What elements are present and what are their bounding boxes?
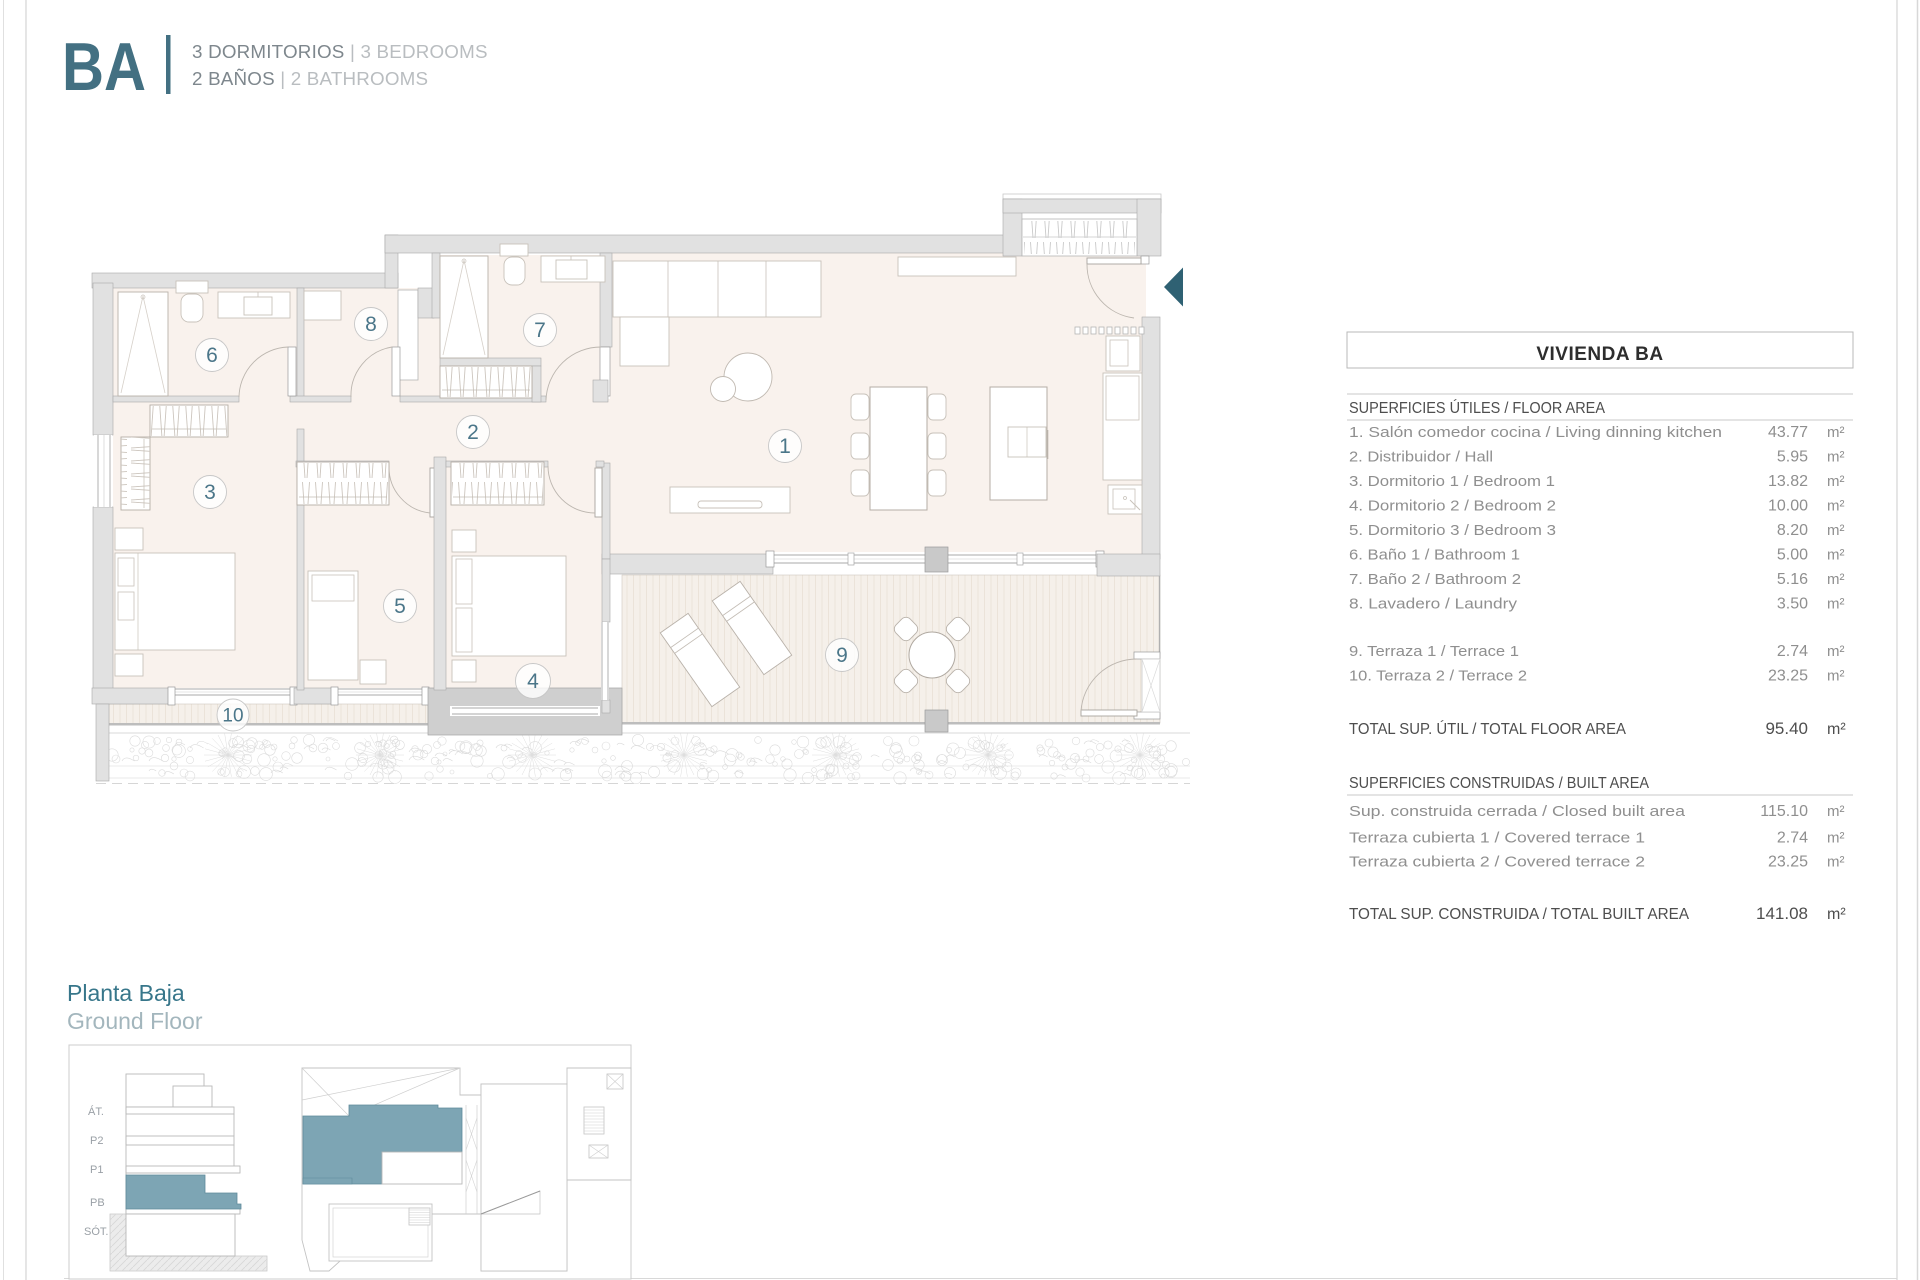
svg-text:13.82: 13.82	[1768, 473, 1808, 490]
svg-text:5.16: 5.16	[1777, 571, 1808, 588]
svg-text:m²: m²	[1827, 473, 1845, 490]
svg-text:Terraza cubierta 2 / Covered t: Terraza cubierta 2 / Covered terrace 2	[1349, 854, 1645, 871]
svg-text:m²: m²	[1827, 668, 1845, 685]
svg-text:23.25: 23.25	[1768, 668, 1808, 685]
svg-text:8.20: 8.20	[1777, 522, 1808, 539]
svg-text:95.40: 95.40	[1765, 719, 1808, 738]
svg-text:7. Baño 2 / Bathroom 2: 7. Baño 2 / Bathroom 2	[1349, 571, 1521, 588]
svg-text:m²: m²	[1827, 854, 1845, 871]
svg-text:Ground Floor: Ground Floor	[67, 1008, 203, 1034]
svg-text:2. Distribuidor / Hall: 2. Distribuidor / Hall	[1349, 449, 1493, 466]
svg-text:10: 10	[222, 705, 243, 726]
svg-text:SÓT.: SÓT.	[84, 1225, 108, 1238]
svg-text:BA: BA	[62, 29, 146, 105]
svg-text:10.00: 10.00	[1768, 498, 1808, 515]
svg-text:115.10: 115.10	[1760, 803, 1808, 820]
svg-text:Sup. construida cerrada / Clos: Sup. construida cerrada / Closed built a…	[1349, 803, 1686, 820]
svg-text:m²: m²	[1827, 498, 1845, 515]
svg-text:6. Baño 1 / Bathroom 1: 6. Baño 1 / Bathroom 1	[1349, 547, 1520, 564]
svg-text:SUPERFICIES CONSTRUIDAS / BUIL: SUPERFICIES CONSTRUIDAS / BUILT AREA	[1349, 775, 1649, 792]
svg-text:m²: m²	[1827, 449, 1845, 466]
svg-text:VIVIENDA BA: VIVIENDA BA	[1536, 344, 1663, 365]
svg-text:8: 8	[365, 313, 377, 336]
svg-text:m²: m²	[1827, 547, 1845, 564]
svg-text:7: 7	[534, 319, 546, 342]
svg-text:Terraza cubierta 1 / Covered t: Terraza cubierta 1 / Covered terrace 1	[1349, 830, 1645, 847]
svg-text:43.77: 43.77	[1768, 424, 1808, 441]
svg-text:PB: PB	[90, 1197, 105, 1209]
svg-text:2 BAÑOS | 2 BATHROOMS: 2 BAÑOS | 2 BATHROOMS	[192, 68, 428, 89]
svg-text:4. Dormitorio 2 / Bedroom 2: 4. Dormitorio 2 / Bedroom 2	[1349, 498, 1556, 515]
svg-text:5.00: 5.00	[1777, 547, 1808, 564]
svg-text:10. Terraza 2 / Terrace 2: 10. Terraza 2 / Terrace 2	[1349, 668, 1527, 685]
svg-text:m²: m²	[1827, 571, 1845, 588]
svg-text:3. Dormitorio 1 / Bedroom 1: 3. Dormitorio 1 / Bedroom 1	[1349, 473, 1555, 490]
svg-text:m²: m²	[1827, 803, 1845, 820]
svg-text:8. Lavadero / Laundry: 8. Lavadero / Laundry	[1349, 596, 1518, 613]
svg-text:2.74: 2.74	[1777, 830, 1808, 847]
svg-text:m²: m²	[1827, 721, 1846, 738]
svg-text:3: 3	[204, 481, 216, 504]
svg-text:4: 4	[527, 670, 539, 693]
svg-text:3.50: 3.50	[1777, 596, 1808, 613]
svg-text:m²: m²	[1827, 906, 1846, 923]
svg-text:23.25: 23.25	[1768, 854, 1808, 871]
svg-text:P1: P1	[90, 1164, 103, 1176]
svg-text:m²: m²	[1827, 424, 1845, 441]
svg-text:2.74: 2.74	[1777, 643, 1808, 660]
svg-text:5.95: 5.95	[1777, 449, 1808, 466]
svg-text:SUPERFICIES ÚTILES / FLOOR ARE: SUPERFICIES ÚTILES / FLOOR AREA	[1349, 398, 1605, 417]
svg-text:P2: P2	[90, 1135, 103, 1147]
svg-text:5. Dormitorio 3 / Bedroom 3: 5. Dormitorio 3 / Bedroom 3	[1349, 522, 1556, 539]
svg-text:9. Terraza 1 / Terrace 1: 9. Terraza 1 / Terrace 1	[1349, 643, 1519, 660]
svg-text:1: 1	[779, 435, 791, 458]
svg-text:2: 2	[467, 421, 479, 444]
svg-text:6: 6	[206, 344, 218, 367]
svg-text:1. Salón comedor cocina / Livi: 1. Salón comedor cocina / Living dinning…	[1349, 424, 1722, 441]
svg-text:m²: m²	[1827, 522, 1845, 539]
svg-text:m²: m²	[1827, 596, 1845, 613]
svg-text:TOTAL SUP. CONSTRUIDA / TOTAL: TOTAL SUP. CONSTRUIDA / TOTAL BUILT AREA	[1349, 906, 1689, 923]
svg-text:m²: m²	[1827, 643, 1845, 660]
svg-text:3 DORMITORIOS | 3 BEDROOMS: 3 DORMITORIOS | 3 BEDROOMS	[192, 41, 488, 62]
svg-text:9: 9	[836, 644, 848, 667]
svg-text:Planta Baja: Planta Baja	[67, 980, 185, 1006]
svg-text:ÁT.: ÁT.	[88, 1105, 104, 1118]
svg-text:TOTAL SUP. ÚTIL / TOTAL FLOOR: TOTAL SUP. ÚTIL / TOTAL FLOOR AREA	[1349, 719, 1626, 738]
svg-text:141.08: 141.08	[1756, 904, 1808, 923]
svg-text:m²: m²	[1827, 830, 1845, 847]
svg-text:5: 5	[394, 595, 406, 618]
